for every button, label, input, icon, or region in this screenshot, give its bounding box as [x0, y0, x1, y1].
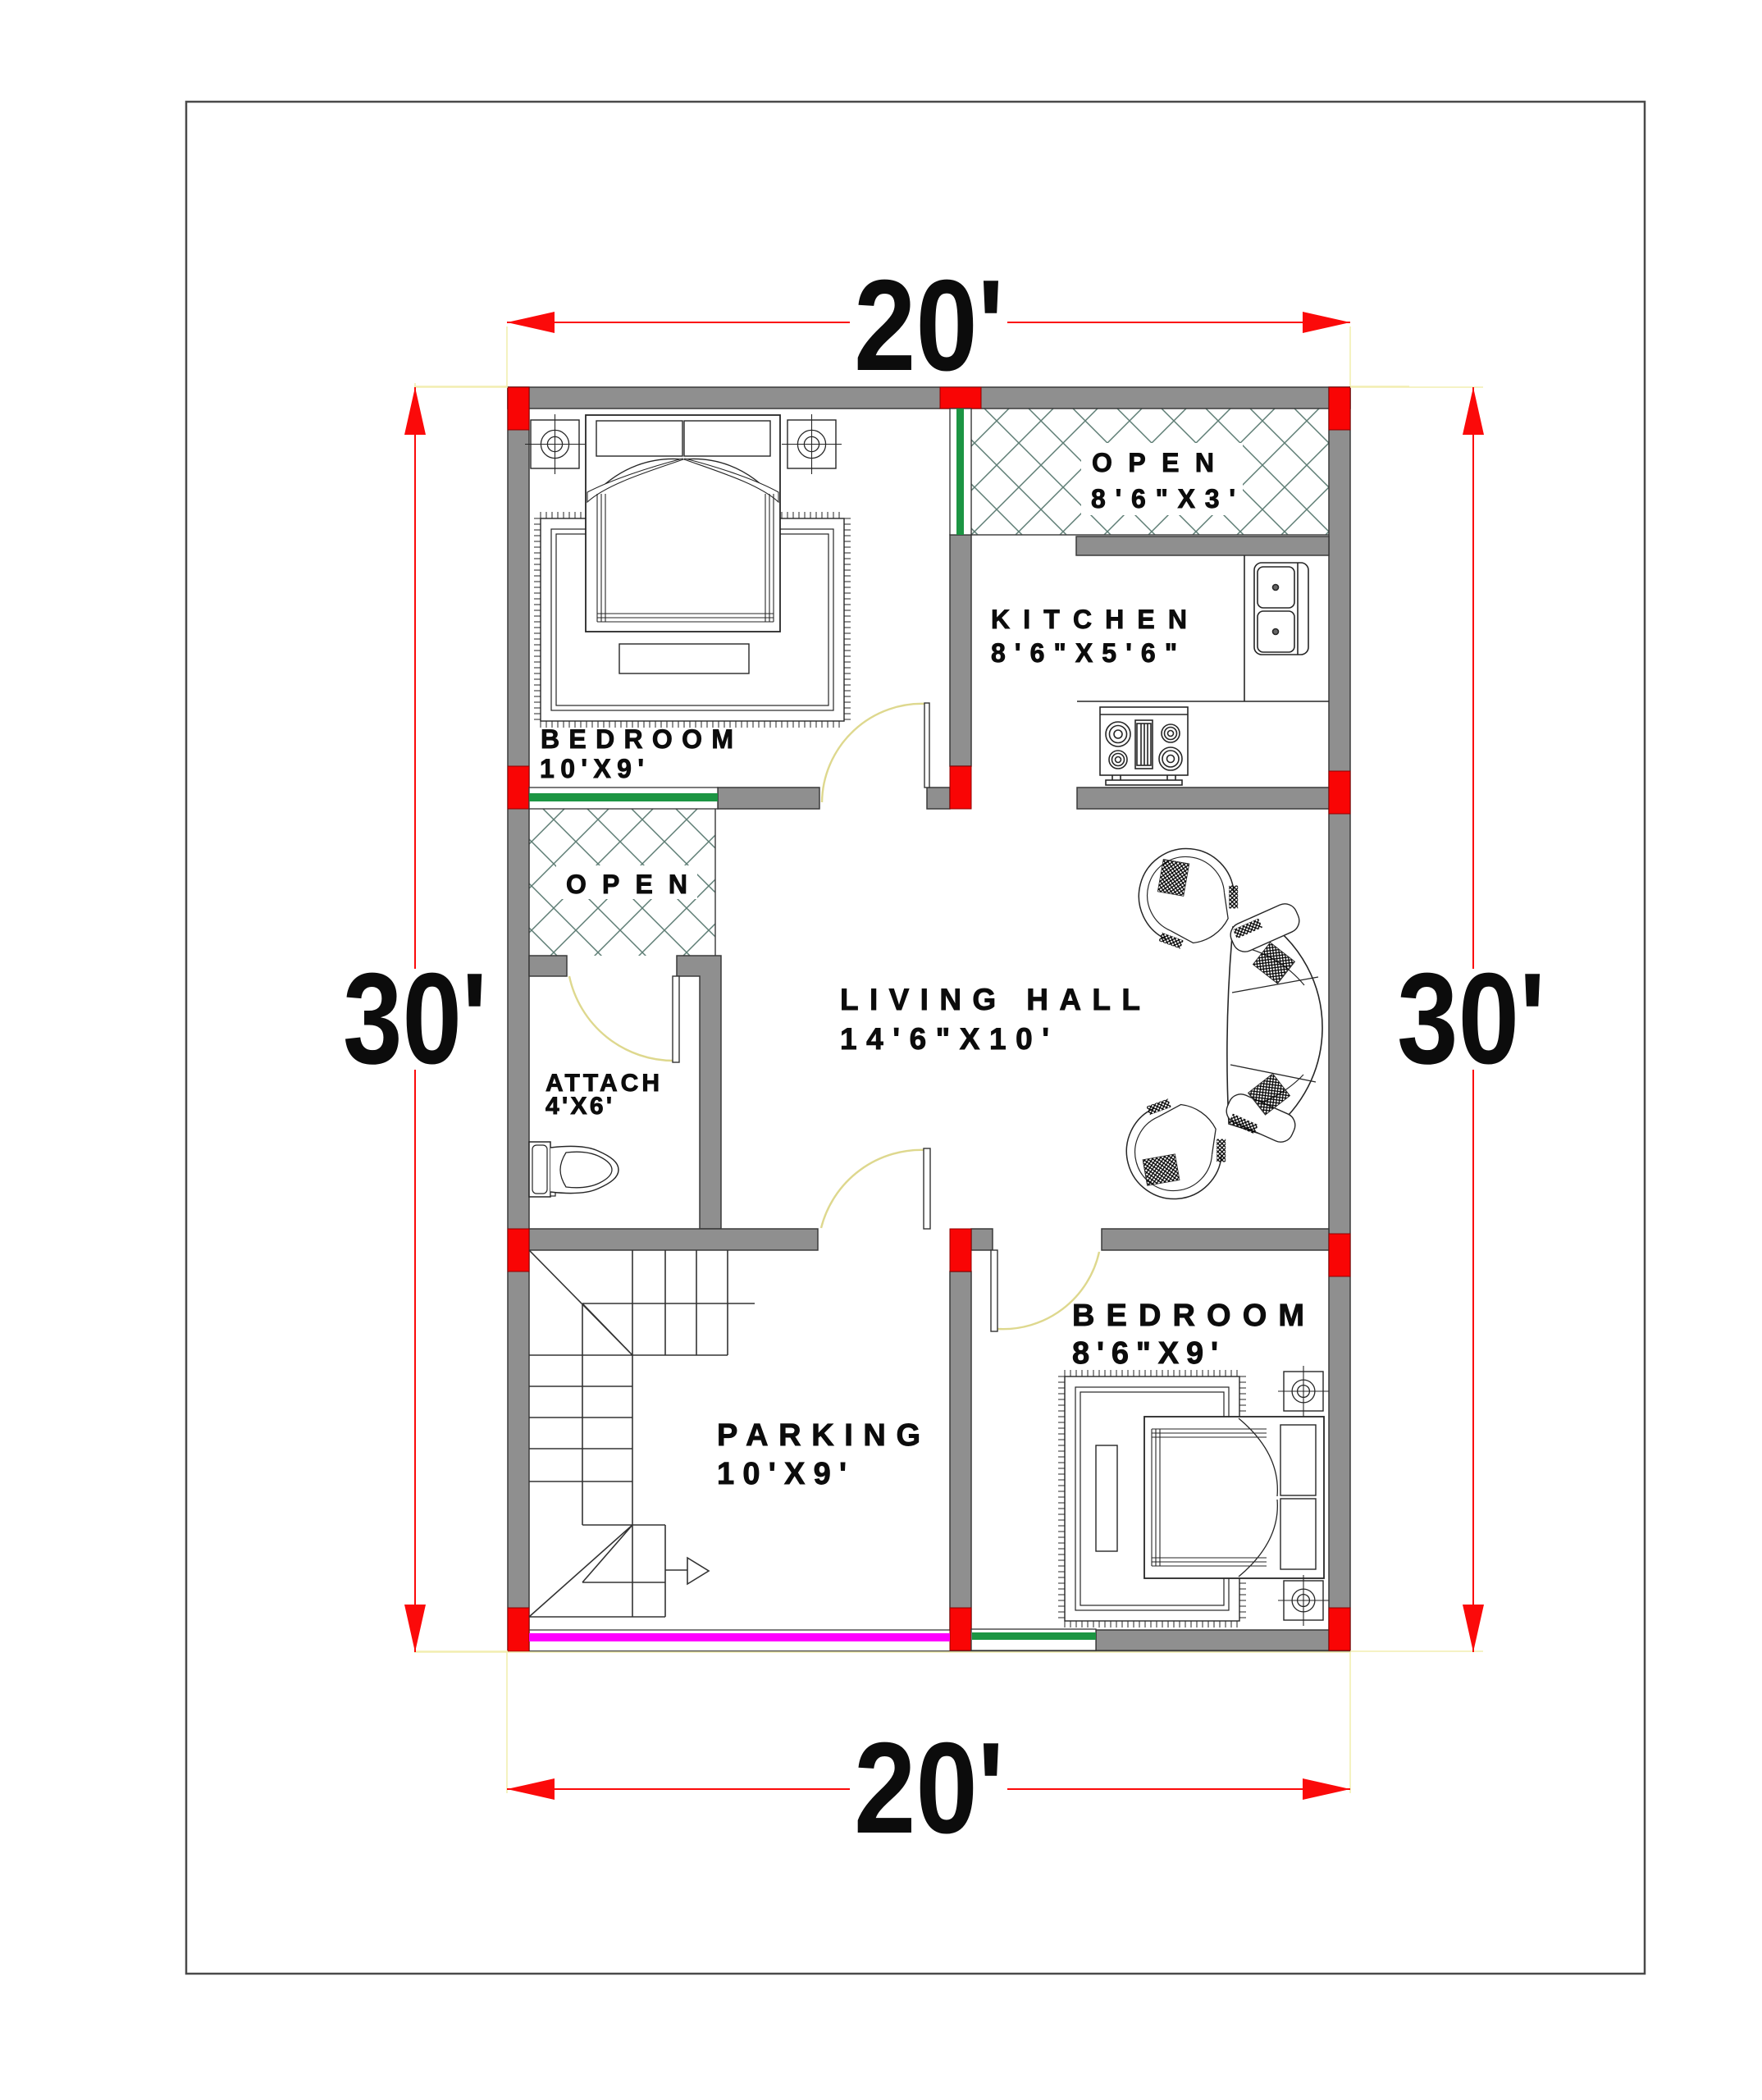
svg-text:20': 20' — [854, 1716, 1004, 1860]
svg-text:20': 20' — [854, 253, 1004, 398]
svg-text:8'6"X5'6": 8'6"X5'6" — [991, 638, 1177, 668]
svg-text:30': 30' — [343, 947, 487, 1091]
svg-text:30': 30' — [1397, 947, 1545, 1091]
svg-text:14'6"X10': 14'6"X10' — [840, 1022, 1049, 1056]
svg-text:4'X6': 4'X6' — [545, 1093, 612, 1120]
